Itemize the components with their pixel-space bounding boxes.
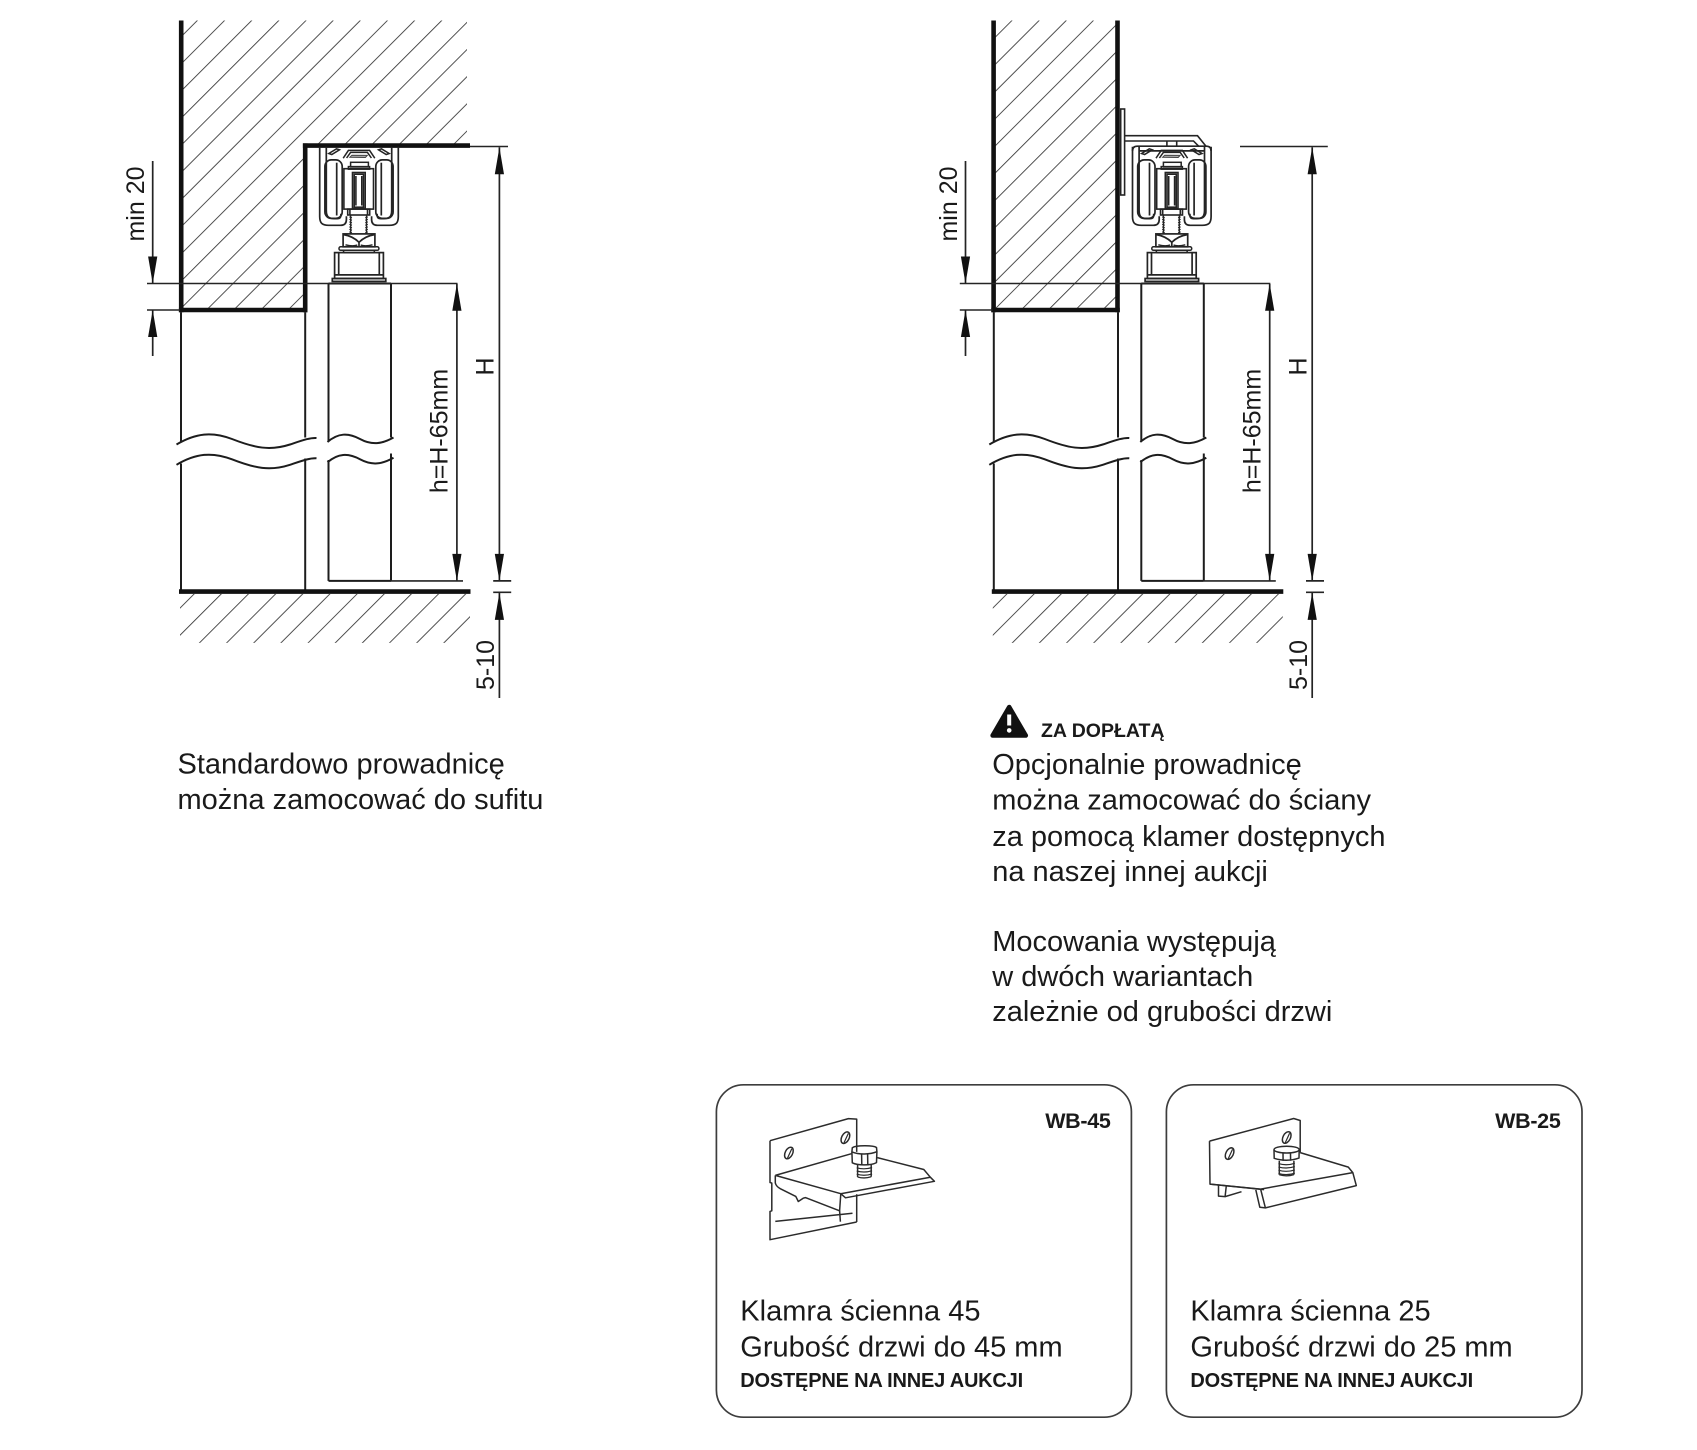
svg-text:WB-45: WB-45 [1045, 1109, 1111, 1133]
svg-text:Klamra ścienna 45: Klamra ścienna 45 [740, 1296, 980, 1328]
svg-text:Mocowania występują: Mocowania występują [992, 926, 1277, 958]
svg-text:Opcjonalnie prowadnicę: Opcjonalnie prowadnicę [992, 749, 1302, 781]
svg-text:DOSTĘPNE NA INNEJ AUKCJI: DOSTĘPNE NA INNEJ AUKCJI [1190, 1370, 1473, 1392]
svg-text:zależnie od grubości drzwi: zależnie od grubości drzwi [992, 996, 1332, 1028]
svg-text:w dwóch wariantach: w dwóch wariantach [991, 961, 1253, 993]
svg-text:DOSTĘPNE NA INNEJ AUKCJI: DOSTĘPNE NA INNEJ AUKCJI [740, 1370, 1023, 1392]
svg-text:za pomocą klamer dostępnych: za pomocą klamer dostępnych [992, 821, 1385, 853]
svg-text:Standardowo prowadnicę: Standardowo prowadnicę [178, 748, 505, 780]
svg-text:ZA DOPŁATĄ: ZA DOPŁATĄ [1041, 720, 1164, 742]
svg-text:można zamocować do sufitu: można zamocować do sufitu [178, 784, 544, 816]
svg-text:można zamocować do ściany: można zamocować do ściany [992, 784, 1371, 816]
svg-text:Grubość drzwi do 45 mm: Grubość drzwi do 45 mm [740, 1331, 1062, 1363]
svg-text:Grubość drzwi do 25 mm: Grubość drzwi do 25 mm [1190, 1331, 1512, 1363]
svg-text:WB-25: WB-25 [1495, 1109, 1561, 1133]
svg-text:Klamra ścienna 25: Klamra ścienna 25 [1190, 1296, 1430, 1328]
svg-text:na naszej innej aukcji: na naszej innej aukcji [992, 856, 1268, 888]
